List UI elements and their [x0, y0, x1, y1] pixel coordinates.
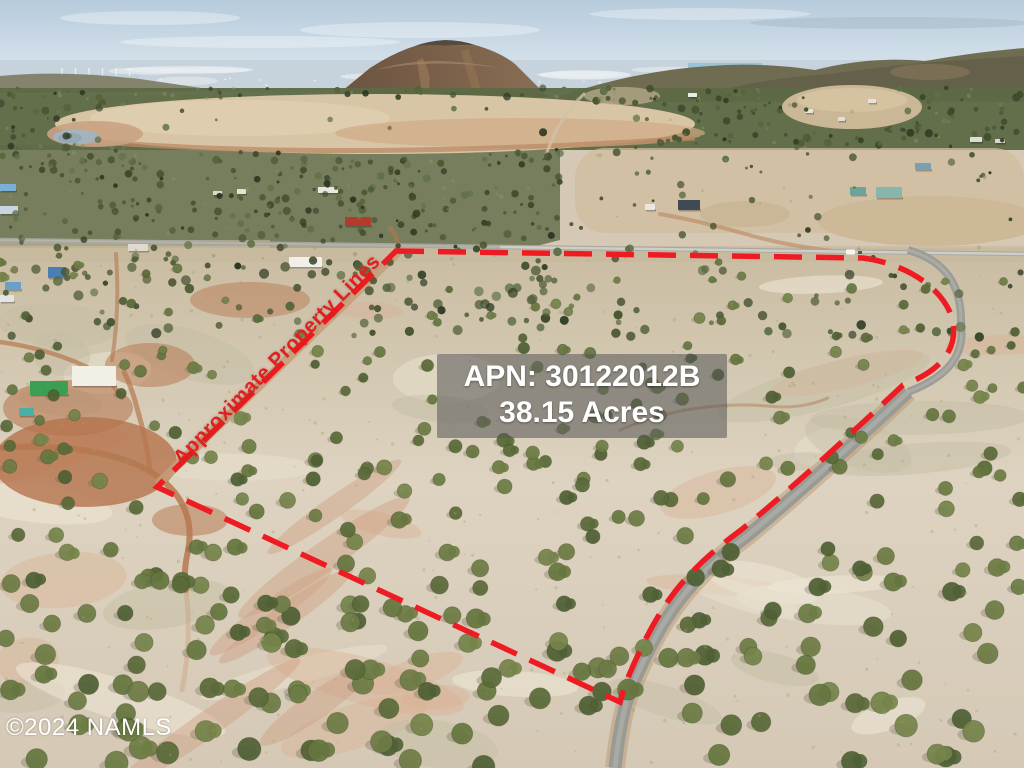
- apn-label-box: APN: 30122012B 38.15 Acres: [437, 354, 727, 438]
- copyright-watermark: ©2024 NAMLS: [6, 714, 172, 742]
- acreage-label: 38.15 Acres: [437, 395, 727, 431]
- aerial-property-photo: APN: 30122012B 38.15 Acres Approximate P…: [0, 0, 1024, 768]
- apn-number: APN: 30122012B: [437, 359, 727, 395]
